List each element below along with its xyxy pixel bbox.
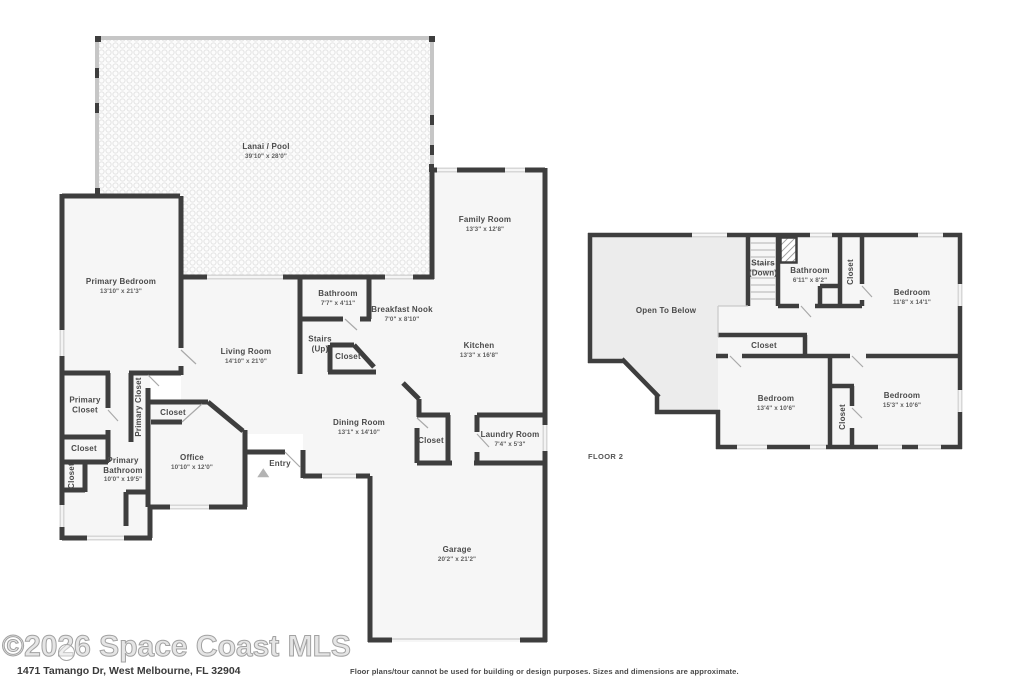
room-name: Primary Bathroom [103, 456, 142, 475]
room-label-stairs-down: Stairs (Down) [749, 258, 777, 277]
room-name: Closet [335, 352, 361, 361]
room-name: Primary Closet [69, 395, 100, 414]
floor2-tag: FLOOR 2 [588, 452, 623, 461]
stairs-line1: Stairs [308, 334, 331, 344]
room-label-bathroom-f1: Bathroom 7'7" x 4'11" [318, 289, 357, 307]
room-dims: 7'4" x 5'3" [481, 441, 540, 449]
room-label-bathroom-f2: Bathroom 6'11" x 8'2" [790, 266, 829, 284]
room-label-stairs-up: Stairs (Up) [308, 334, 331, 353]
disclaimer-text: Floor plans/tour cannot be used for buil… [350, 667, 739, 676]
room-name: Closet [846, 259, 855, 285]
room-name: Closet [160, 408, 186, 417]
room-name: Closet [751, 341, 777, 350]
room-name: Kitchen [464, 341, 495, 350]
room-label-office: Office 10'10" x 12'0" [171, 453, 213, 471]
room-dims: 14'10" x 21'0" [221, 358, 272, 366]
room-label-family-room: Family Room 13'3" x 12'8" [459, 215, 511, 233]
room-name: Primary Bedroom [86, 277, 156, 286]
floor2-attic-hatch [781, 238, 797, 263]
room-dims: 13'1" x 14'10" [333, 429, 385, 437]
room-dims: 13'10" x 21'3" [86, 288, 156, 296]
room-name: Lanai / Pool [242, 142, 289, 151]
room-dims: 10'10" x 12'0" [171, 464, 213, 472]
room-dims: 39'10" x 28'0" [242, 153, 289, 161]
room-name: Primary Closet [134, 377, 143, 436]
room-label-hall-closet-f2: Closet [751, 341, 777, 351]
room-label-office-closet: Closet [160, 408, 186, 418]
room-dims: 10'0" x 19'5" [95, 476, 151, 484]
room-name: Bedroom [884, 391, 921, 400]
room-label-living-room: Living Room 14'10" x 21'0" [221, 347, 272, 365]
room-name: Dining Room [333, 418, 385, 427]
room-name: Garage [443, 545, 472, 554]
room-label-primary-bathroom: Primary Bathroom 10'0" x 19'5" [95, 456, 151, 484]
room-name: Living Room [221, 347, 272, 356]
entry-arrow-icon [257, 459, 269, 477]
room-label-laundry-room: Laundry Room 7'4" x 5'3" [481, 430, 540, 448]
room-label-closet-bottom-f2: Closet [838, 404, 848, 430]
room-name: Family Room [459, 215, 511, 224]
room-dims: 13'3" x 12'8" [459, 226, 511, 234]
room-name: Bathroom [790, 266, 829, 275]
room-label-closet-top-f2: Closet [846, 259, 856, 285]
mls-watermark: ©2026 Space Coast MLS [2, 630, 351, 664]
room-name: Closet [67, 463, 76, 489]
room-name: Breakfast Nook [371, 305, 433, 314]
room-label-primary-closet-b: Primary Closet [134, 377, 144, 436]
room-name: Closet [418, 436, 444, 445]
room-label-primary-bedroom: Primary Bedroom 13'10" x 21'3" [86, 277, 156, 295]
room-name: Closet [838, 404, 847, 430]
stairs-line2: (Up) [308, 344, 331, 354]
stairs-line2: (Down) [749, 268, 777, 278]
room-label-dining-closet: Closet [418, 436, 444, 446]
room-dims: 11'8" x 14'1" [893, 299, 931, 307]
room-label-closet-small: Closet [71, 444, 97, 454]
floorplan-drawing [0, 0, 1024, 683]
room-label-breakfast-nook: Breakfast Nook 7'0" x 8'10" [371, 305, 433, 323]
property-address: 1471 Tamango Dr, West Melbourne, FL 3290… [17, 665, 241, 677]
room-label-primary-closet-a: Primary Closet [61, 395, 109, 414]
room-label-closet-vertical: Closet [67, 463, 77, 489]
room-label-open-to-below: Open To Below [636, 306, 696, 316]
room-name: Office [180, 453, 204, 462]
room-label-bedroom-middle: Bedroom 13'4" x 10'6" [757, 394, 795, 412]
room-label-stairs-closet: Closet [335, 352, 361, 362]
room-dims: 7'0" x 8'10" [371, 316, 433, 324]
floorplan-page: Lanai / Pool 39'10" x 28'0" Family Room … [0, 0, 1024, 683]
room-label-dining-room: Dining Room 13'1" x 14'10" [333, 418, 385, 436]
room-name: Open To Below [636, 306, 696, 315]
room-label-garage: Garage 20'2" x 21'2" [438, 545, 476, 563]
room-dims: 6'11" x 8'2" [790, 277, 829, 285]
room-name: Entry [269, 459, 290, 468]
room-label-bedroom-bottom-right: Bedroom 15'3" x 10'6" [883, 391, 921, 409]
room-label-kitchen: Kitchen 13'3" x 16'8" [460, 341, 498, 359]
room-name: Bedroom [894, 288, 931, 297]
room-name: Bathroom [318, 289, 357, 298]
room-label-lanai: Lanai / Pool 39'10" x 28'0" [242, 142, 289, 160]
room-name: Bedroom [758, 394, 795, 403]
mls-logo-icon [58, 644, 75, 661]
room-label-entry: Entry [257, 459, 290, 469]
room-dims: 13'3" x 16'8" [460, 352, 498, 360]
stairs-line1: Stairs [749, 258, 777, 268]
room-dims: 7'7" x 4'11" [318, 300, 357, 308]
room-dims: 13'4" x 10'6" [757, 405, 795, 413]
room-name: Closet [71, 444, 97, 453]
room-dims: 15'3" x 10'6" [883, 402, 921, 410]
room-label-bedroom-right: Bedroom 11'8" x 14'1" [893, 288, 931, 306]
room-name: Laundry Room [481, 430, 540, 439]
room-dims: 20'2" x 21'2" [438, 556, 476, 564]
